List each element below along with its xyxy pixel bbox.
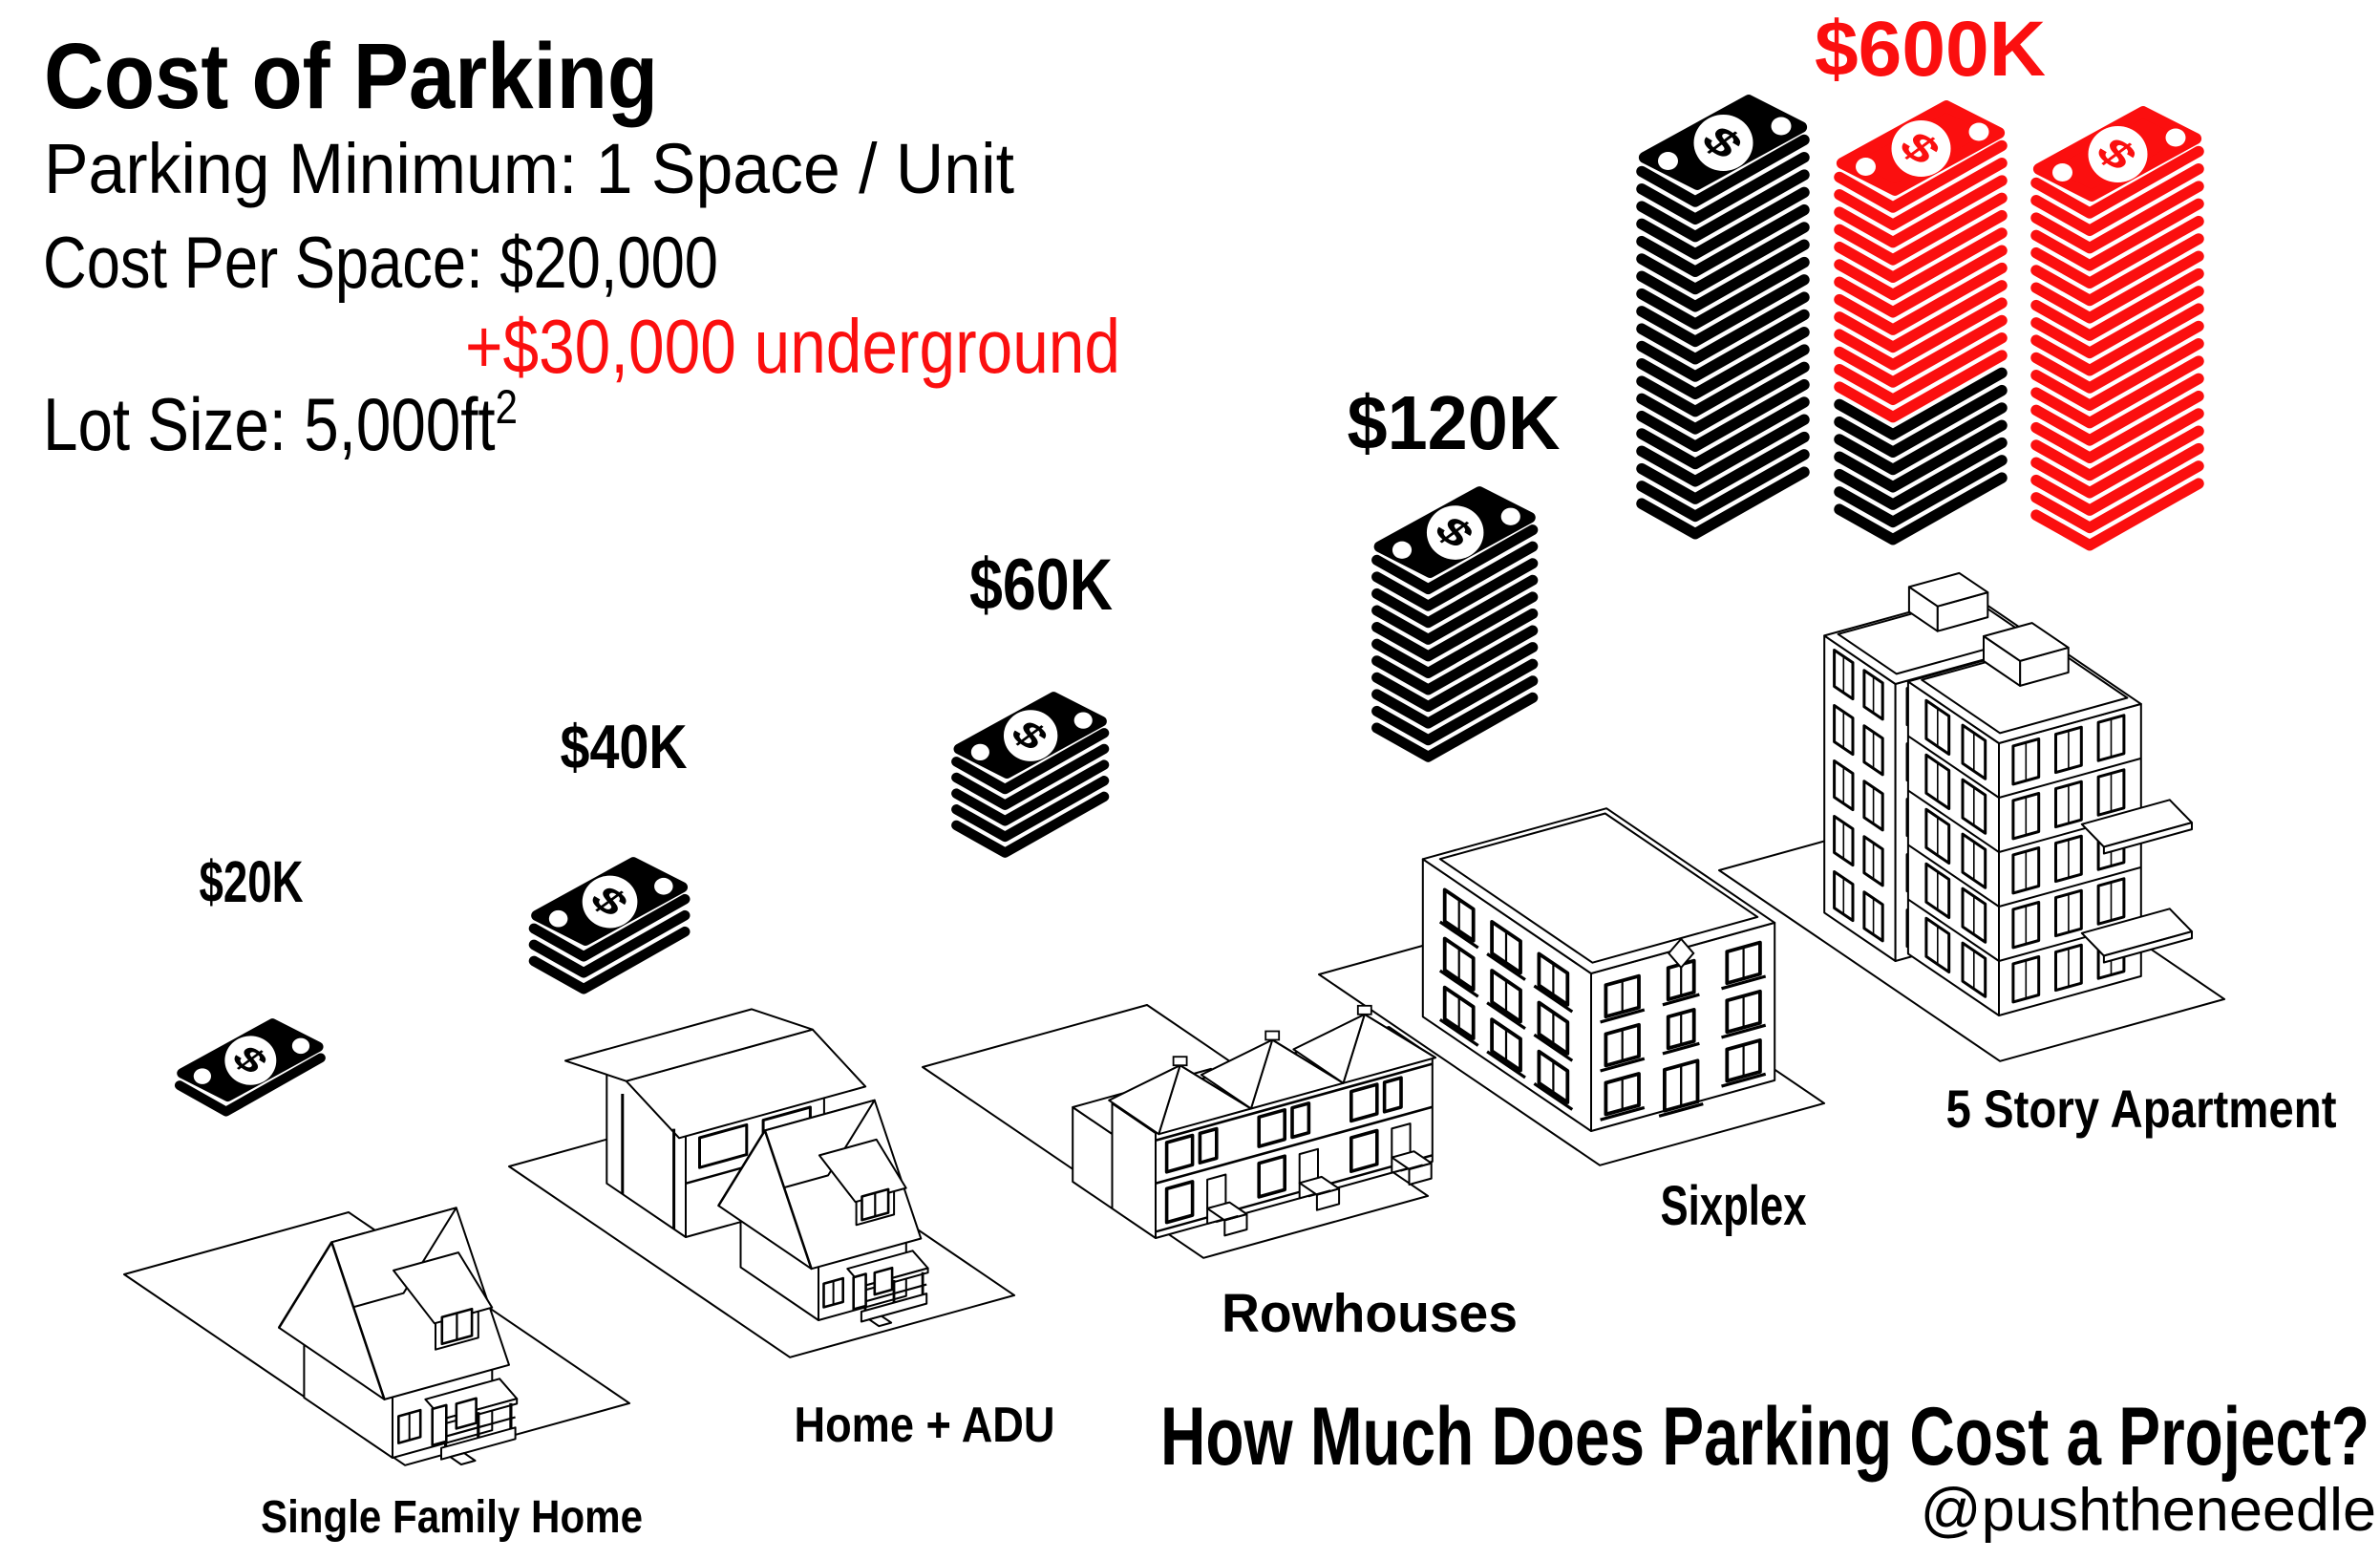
svg-text:Home + ADU: Home + ADU: [795, 1398, 1055, 1453]
svg-text:@pushtheneedle: @pushtheneedle: [1921, 1477, 2376, 1544]
svg-text:+$30,000 underground: +$30,000 underground: [465, 304, 1120, 389]
svg-text:$600K: $600K: [1815, 6, 2046, 93]
svg-text:$60K: $60K: [969, 545, 1113, 626]
svg-text:How Much Does Parking Cost a P: How Much Does Parking Cost a Project?: [1160, 1391, 2369, 1483]
svg-text:$40K: $40K: [561, 712, 688, 781]
svg-text:5 Story Apartment: 5 Story Apartment: [1946, 1079, 2337, 1139]
svg-text:Cost of Parking: Cost of Parking: [44, 24, 658, 128]
svg-text:$20K: $20K: [200, 849, 304, 914]
svg-text:$120K: $120K: [1348, 380, 1561, 465]
svg-text:Parking Minimum: 1 Space / Uni: Parking Minimum: 1 Space / Unit: [44, 129, 1014, 208]
svg-text:Sixplex: Sixplex: [1661, 1175, 1807, 1237]
svg-text:Lot Size: 5,000ft2: Lot Size: 5,000ft2: [43, 380, 518, 466]
svg-text:Rowhouses: Rowhouses: [1222, 1283, 1518, 1344]
svg-text:Cost Per Space: $20,000: Cost Per Space: $20,000: [43, 223, 718, 304]
svg-text:Single Family Home: Single Family Home: [261, 1492, 643, 1543]
